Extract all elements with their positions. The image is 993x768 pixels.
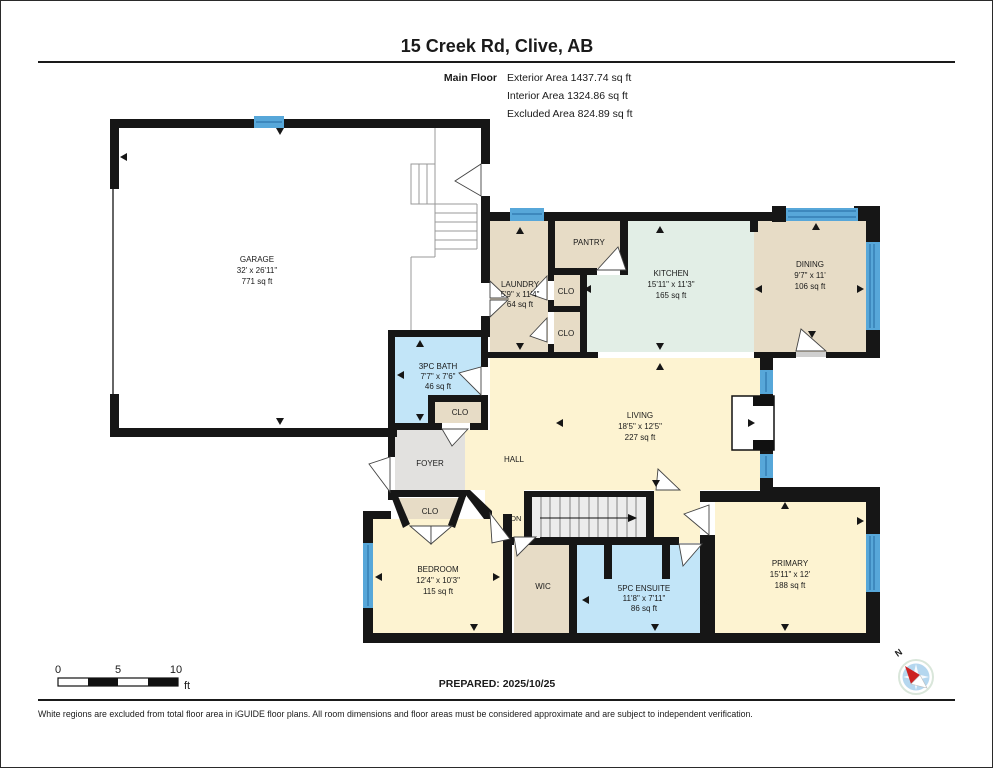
page-title: 15 Creek Rd, Clive, AB bbox=[401, 36, 593, 56]
window-dining-top bbox=[786, 208, 858, 221]
bath-area: 46 sq ft bbox=[425, 382, 452, 391]
scale-5: 5 bbox=[115, 664, 121, 676]
door-front-entry bbox=[369, 457, 390, 492]
window-dining-right bbox=[866, 242, 880, 330]
dining-area: 106 sq ft bbox=[795, 282, 826, 291]
closet-laundry-upper-label: CLO bbox=[558, 287, 574, 296]
ensuite-dims: 11'8" x 7'11" bbox=[623, 594, 666, 603]
closet-hall-label: CLO bbox=[422, 507, 438, 516]
scale-bar: 0 5 10 ft bbox=[55, 664, 190, 692]
foyer-label: FOYER bbox=[416, 459, 444, 468]
header-divider bbox=[38, 61, 955, 63]
hall-label: HALL bbox=[504, 455, 525, 464]
living-area: 227 sq ft bbox=[625, 433, 656, 442]
window-primary bbox=[866, 534, 880, 592]
excluded-area: Excluded Area 824.89 sq ft bbox=[507, 108, 633, 120]
disclaimer-text: White regions are excluded from total fl… bbox=[38, 709, 753, 719]
scale-unit: ft bbox=[184, 680, 190, 692]
bath-dims: 7'7" x 7'6" bbox=[421, 372, 456, 381]
dining-dims: 9'7" x 11' bbox=[794, 271, 826, 280]
patio-door-sill bbox=[796, 352, 826, 357]
kitchen-area: 165 sq ft bbox=[656, 291, 687, 300]
bedroom-name: BEDROOM bbox=[417, 565, 459, 574]
floor-label: Main Floor bbox=[444, 72, 497, 84]
exterior-area: Exterior Area 1437.74 sq ft bbox=[507, 72, 631, 84]
compass-north-label: N bbox=[893, 647, 904, 659]
laundry-dims: 5'9" x 11'4" bbox=[501, 290, 540, 299]
primary-area: 188 sq ft bbox=[775, 581, 806, 590]
laundry-area: 64 sq ft bbox=[507, 300, 534, 309]
floorplan-page: 15 Creek Rd, Clive, AB Main Floor Exteri… bbox=[0, 0, 993, 768]
bath-name: 3PC BATH bbox=[419, 362, 458, 371]
primary-name: PRIMARY bbox=[772, 559, 809, 568]
floorplan-svg: 15 Creek Rd, Clive, AB Main Floor Exteri… bbox=[0, 0, 993, 768]
garage-name: GARAGE bbox=[240, 255, 274, 264]
bedroom-area: 115 sq ft bbox=[423, 587, 454, 596]
primary-dims: 15'11" x 12' bbox=[770, 570, 811, 579]
closet-bath-label: CLO bbox=[452, 408, 468, 417]
stairs-dn-label: DN bbox=[511, 514, 522, 523]
garage-dims: 32' x 26'11" bbox=[237, 266, 278, 275]
closet-laundry-lower-label: CLO bbox=[558, 329, 574, 338]
footer-divider bbox=[38, 699, 955, 701]
ensuite-area: 86 sq ft bbox=[631, 604, 658, 613]
garage-area: 771 sq ft bbox=[242, 277, 273, 286]
stairs-down bbox=[532, 497, 646, 538]
kitchen-name: KITCHEN bbox=[653, 269, 688, 278]
kitchen-dims: 15'11" x 11'3" bbox=[647, 280, 694, 289]
pantry-name: PANTRY bbox=[573, 238, 605, 247]
scale-0: 0 bbox=[55, 664, 61, 676]
dining-name: DINING bbox=[796, 260, 824, 269]
living-dims: 18'5" x 12'5" bbox=[618, 422, 662, 431]
prepared-date: PREPARED: 2025/10/25 bbox=[439, 678, 556, 690]
laundry-name: LAUNDRY bbox=[501, 280, 540, 289]
interior-area: Interior Area 1324.86 sq ft bbox=[507, 90, 628, 102]
wic-label: WIC bbox=[535, 582, 551, 591]
compass: N bbox=[893, 647, 933, 694]
living-name: LIVING bbox=[627, 411, 653, 420]
bedroom-dims: 12'4" x 10'3" bbox=[416, 576, 460, 585]
ensuite-name: 5PC ENSUITE bbox=[618, 584, 670, 593]
scale-10: 10 bbox=[170, 664, 182, 676]
